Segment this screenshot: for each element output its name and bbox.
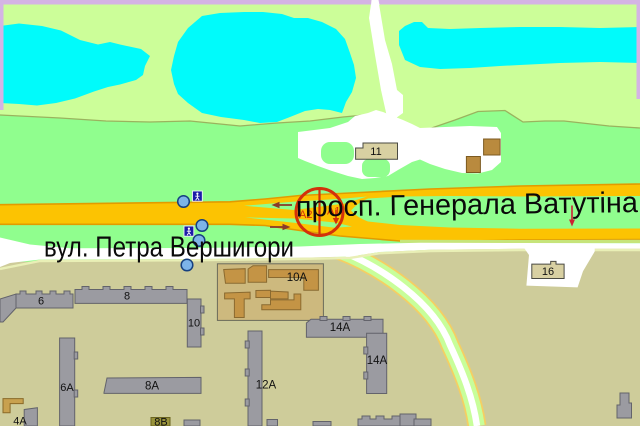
- svg-text:8: 8: [124, 291, 130, 303]
- svg-text:10A: 10A: [287, 272, 308, 284]
- svg-text:14A: 14A: [330, 322, 351, 334]
- svg-text:просп. Генерала Ватутіна: просп. Генерала Ватутіна: [296, 187, 639, 223]
- svg-text:12A: 12A: [256, 380, 277, 392]
- svg-text:вул. Петра Вершигори: вул. Петра Вершигори: [44, 232, 294, 264]
- svg-text:8A: 8A: [145, 381, 159, 393]
- svg-text:10: 10: [188, 318, 200, 330]
- svg-text:16: 16: [542, 266, 554, 278]
- svg-text:8В: 8В: [154, 417, 167, 426]
- svg-text:4A: 4A: [13, 416, 27, 426]
- svg-text:14A: 14A: [367, 355, 388, 367]
- svg-text:6A: 6A: [60, 382, 74, 394]
- svg-text:11: 11: [370, 146, 381, 158]
- svg-text:6: 6: [38, 296, 44, 308]
